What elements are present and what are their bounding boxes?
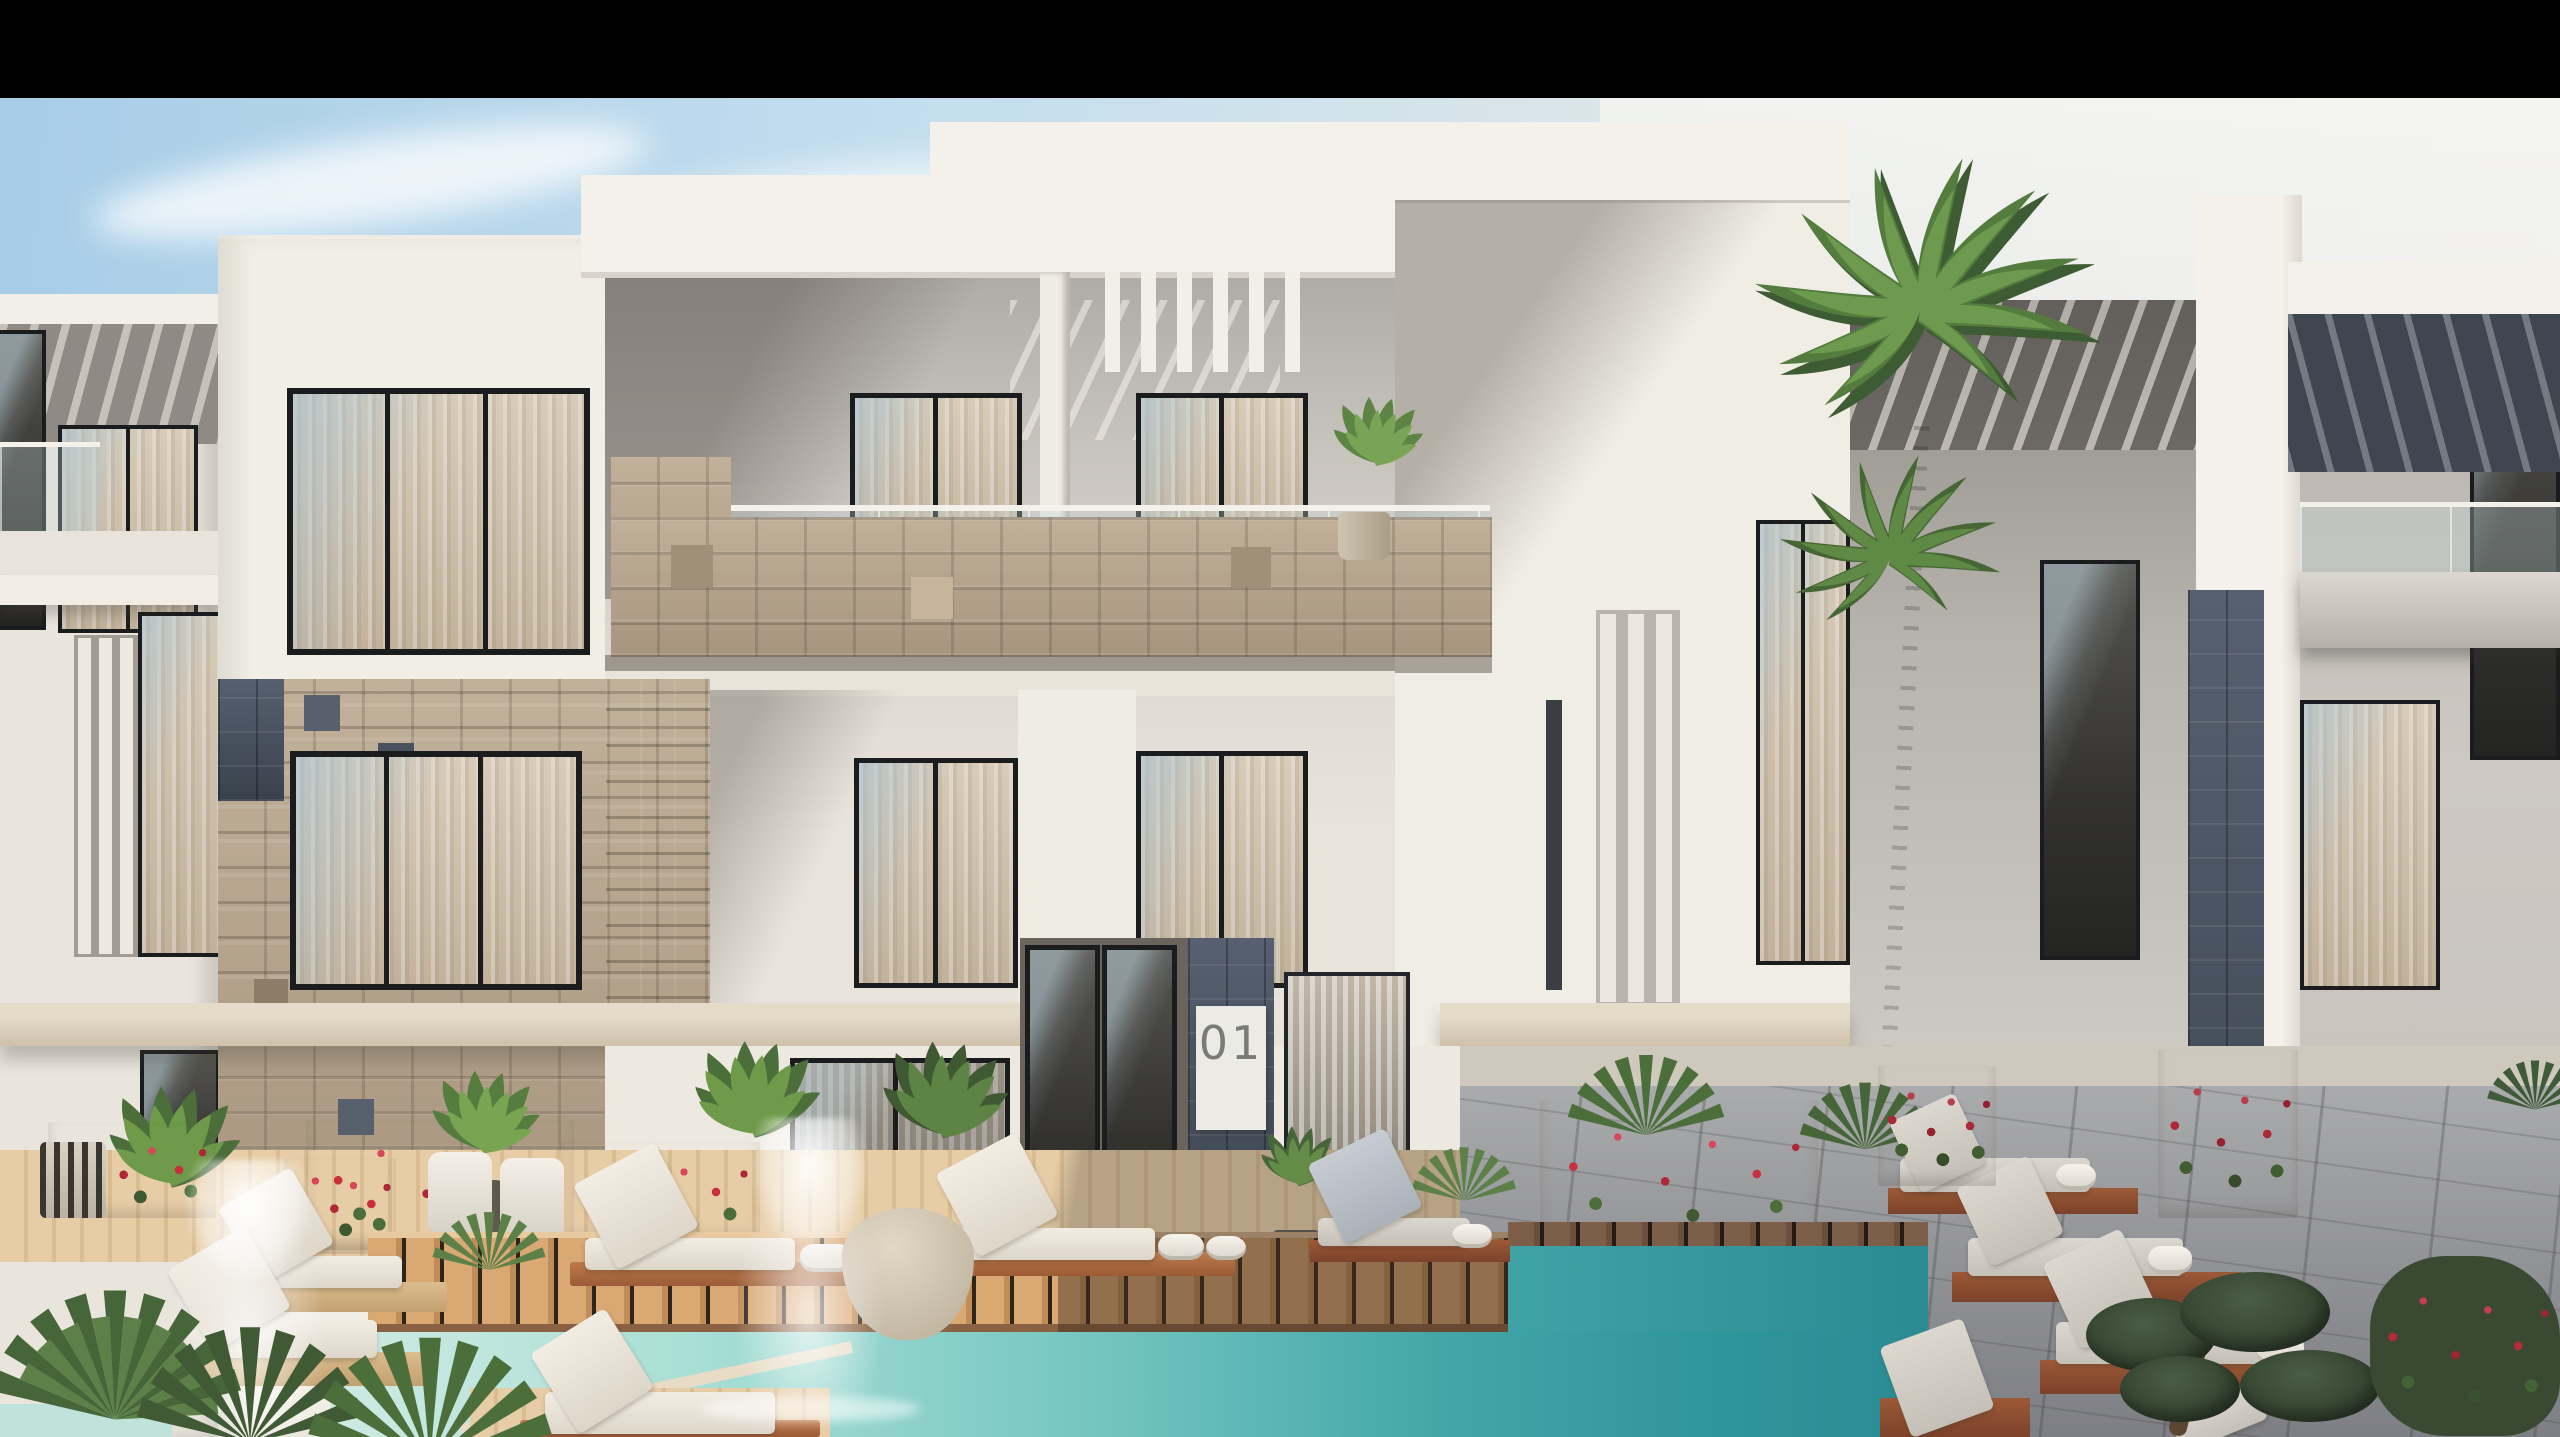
architectural-rendering: 01 bbox=[0, 0, 2560, 1437]
flower-bush bbox=[2370, 1256, 2560, 1436]
flower-planter-shaded bbox=[2158, 1050, 2298, 1218]
letterbox-top bbox=[0, 0, 2560, 98]
pool-right-arm bbox=[1508, 1242, 1928, 1332]
rolled-towel bbox=[1158, 1234, 1204, 1260]
fan-palm bbox=[1404, 1128, 1524, 1220]
bonsai-foliage bbox=[2120, 1356, 2240, 1422]
rolled-towel bbox=[1206, 1236, 1246, 1260]
fan-palm-shaded bbox=[2480, 1030, 2560, 1140]
fountain-plume bbox=[722, 1118, 897, 1418]
pool-courtyard bbox=[0, 0, 2560, 1437]
flower-planter-shaded bbox=[1878, 1066, 1996, 1186]
fan-palm bbox=[1556, 1030, 1736, 1160]
pool-deck-edge-shaded bbox=[1508, 1222, 1928, 1246]
fan-palm-bush bbox=[280, 1330, 580, 1437]
rolled-towel bbox=[2056, 1164, 2096, 1190]
fan-palm-small bbox=[424, 1186, 554, 1296]
bonsai-foliage bbox=[2180, 1272, 2330, 1352]
side-table-lamp bbox=[40, 1142, 106, 1218]
bonsai-foliage bbox=[2240, 1350, 2380, 1422]
rolled-towel bbox=[2148, 1246, 2192, 1274]
fountain-ripple bbox=[700, 1396, 920, 1422]
rolled-towel bbox=[1452, 1224, 1492, 1248]
